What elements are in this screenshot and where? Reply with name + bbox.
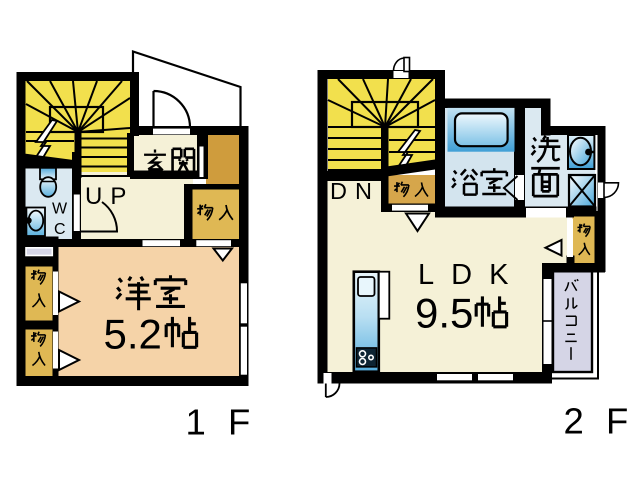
svg-text:UP: UP — [85, 183, 134, 210]
svg-text:5.2: 5.2 — [104, 311, 162, 358]
svg-text:C: C — [54, 221, 66, 238]
svg-text:1 F: 1 F — [186, 402, 257, 443]
svg-text:2 F: 2 F — [564, 401, 635, 442]
svg-text:LDK: LDK — [418, 259, 525, 291]
svg-text:DN: DN — [330, 178, 380, 204]
svg-text:9.5: 9.5 — [415, 290, 473, 337]
svg-text:W: W — [52, 201, 68, 218]
